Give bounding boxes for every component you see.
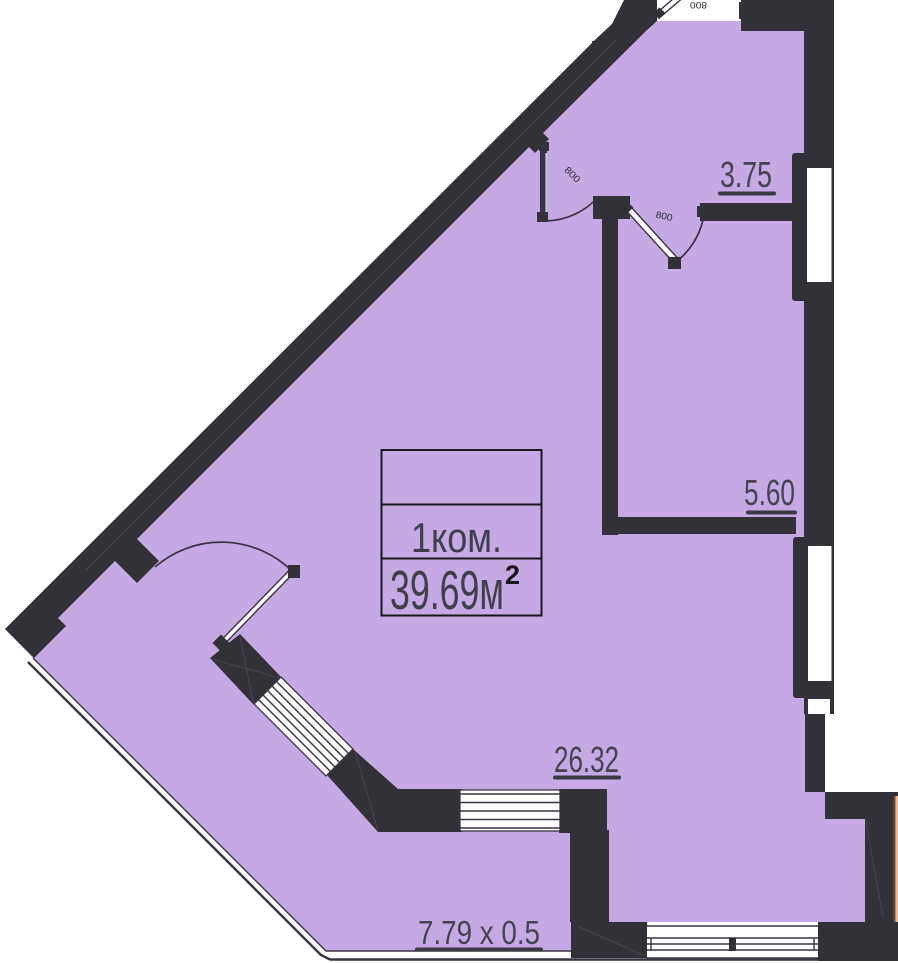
svg-text:3.75: 3.75 [720, 154, 772, 195]
svg-text:800: 800 [690, 0, 707, 10]
svg-text:1ком.: 1ком. [411, 514, 502, 561]
svg-text:39.69м: 39.69м [390, 559, 504, 621]
svg-text:2: 2 [505, 560, 520, 590]
svg-text:7.79 x 0.5: 7.79 x 0.5 [418, 914, 540, 951]
svg-text:26.32: 26.32 [554, 739, 619, 780]
svg-text:5.60: 5.60 [744, 472, 795, 513]
